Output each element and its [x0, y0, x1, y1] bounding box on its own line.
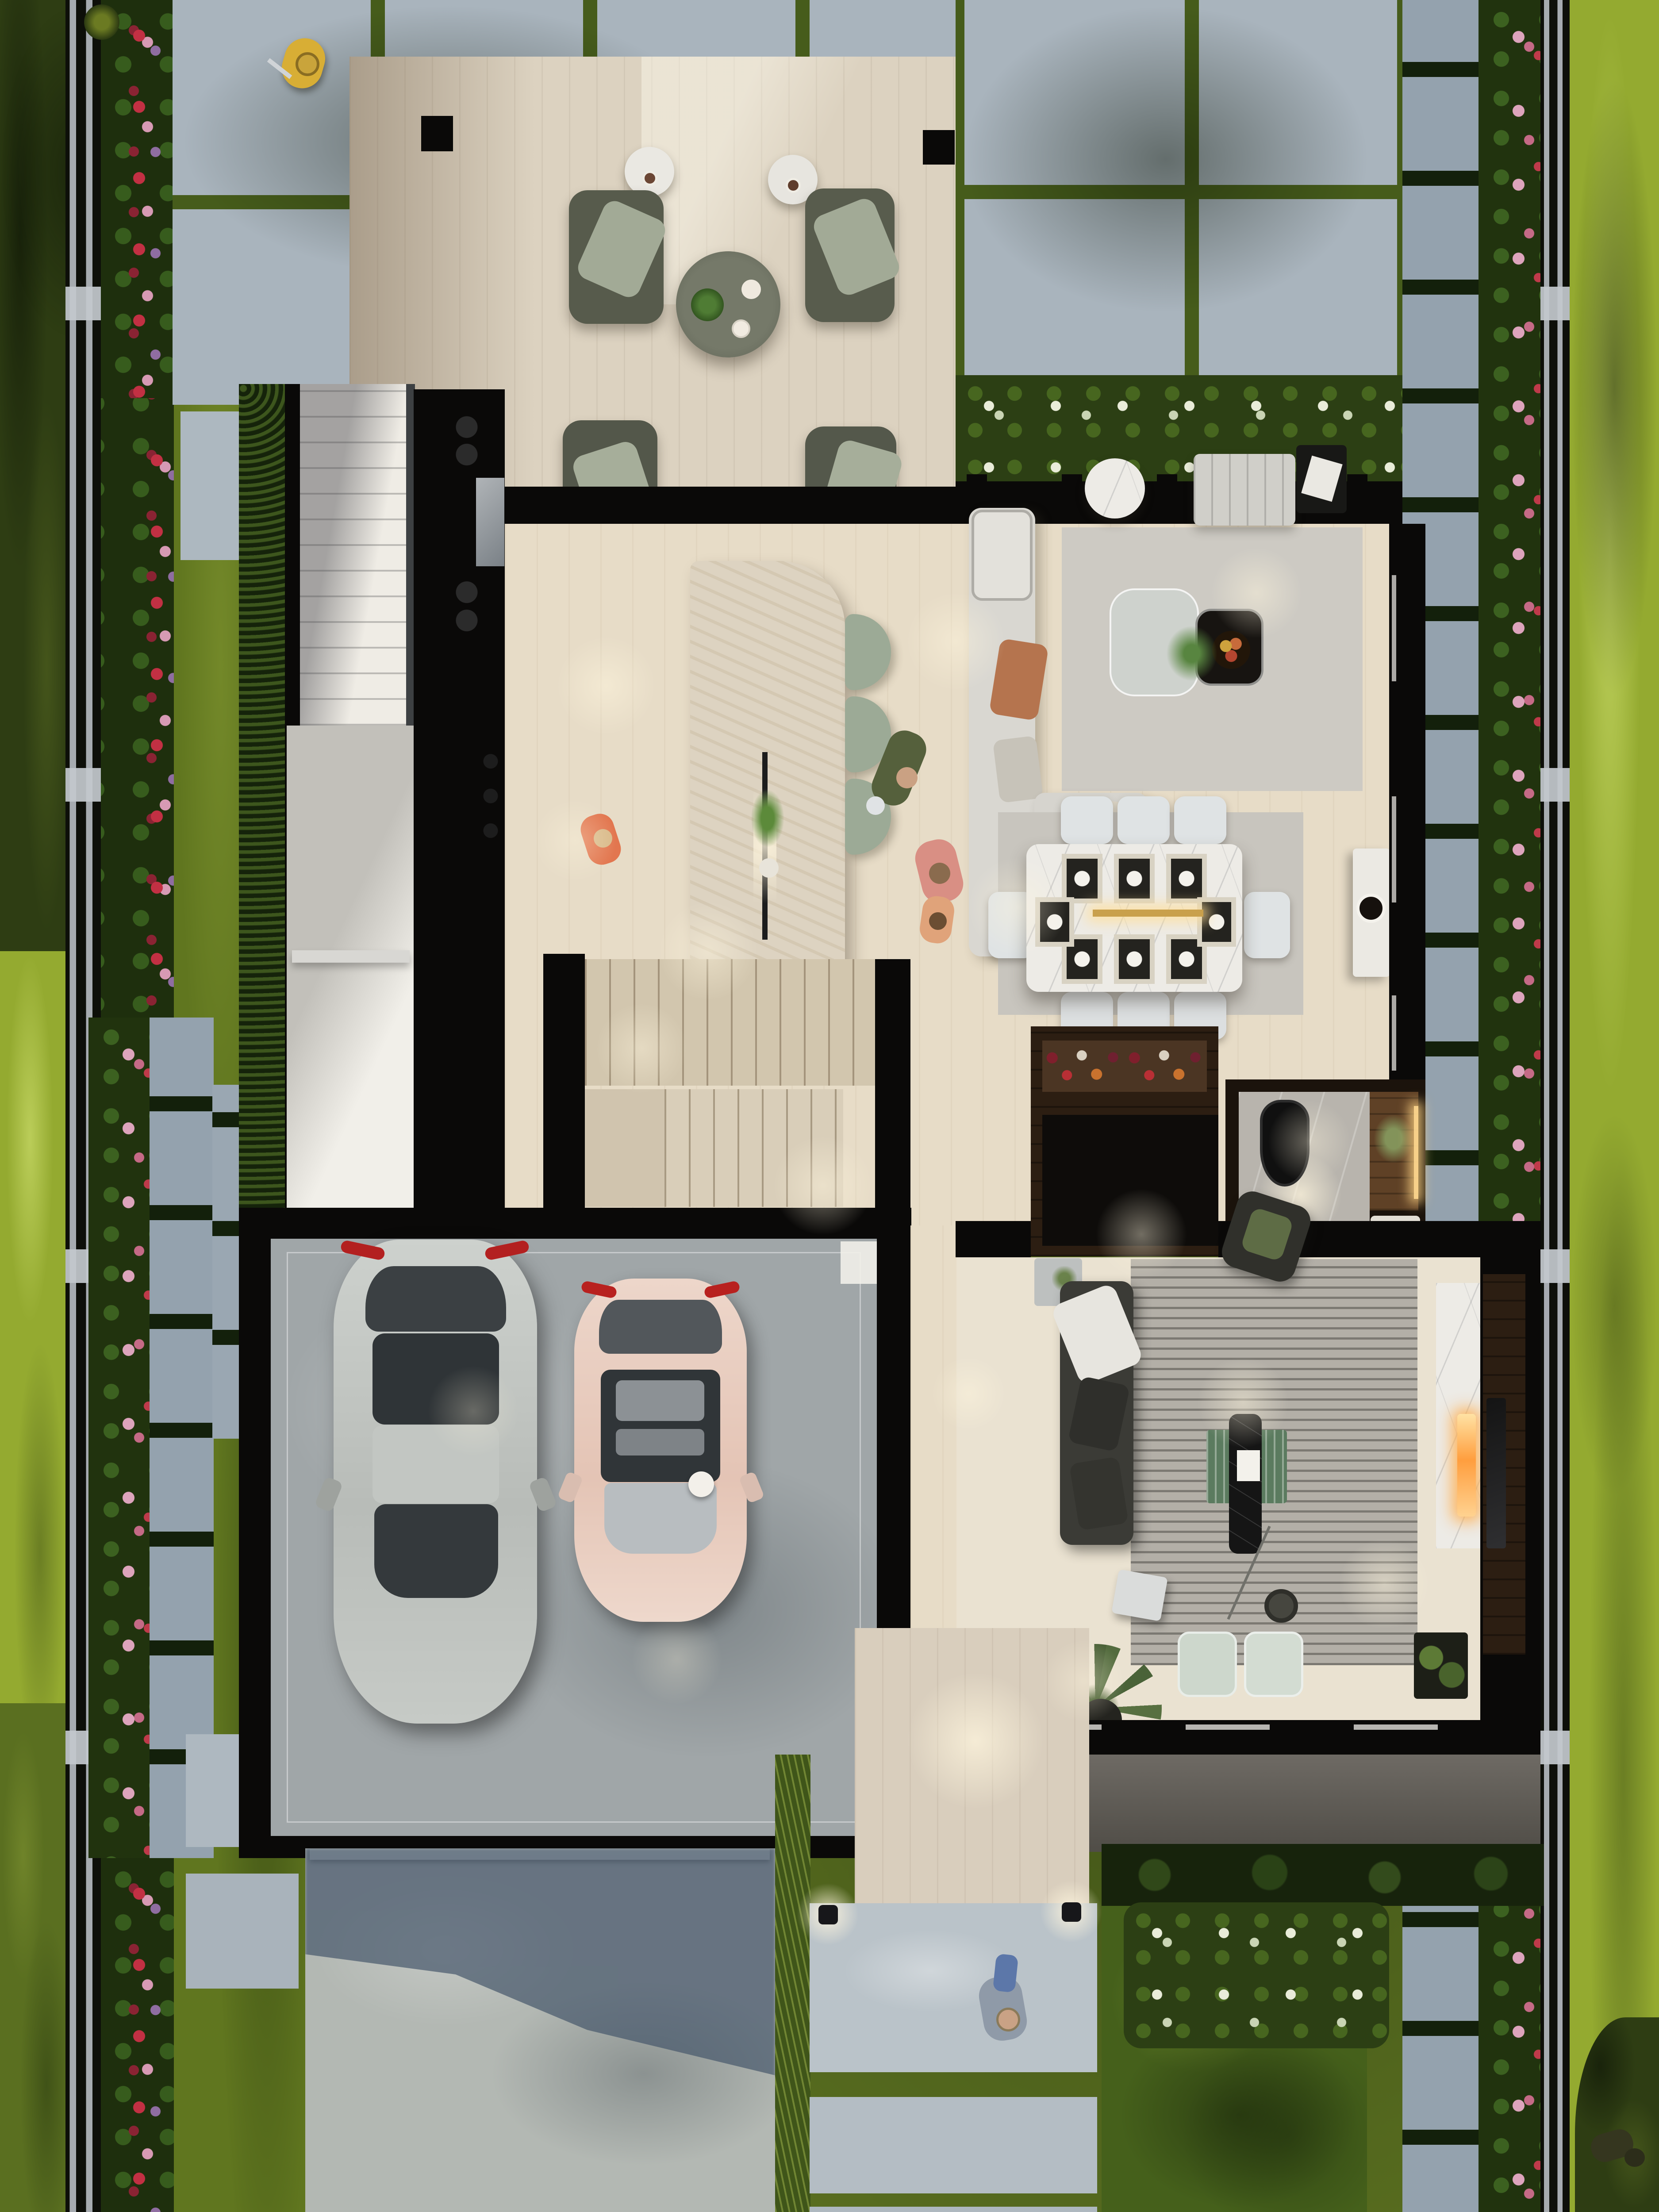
place-setting-n3 [1166, 854, 1207, 903]
ceiling-glow-5 [964, 854, 1071, 960]
laundry-shadow [287, 726, 415, 1208]
white-flower-bushes [1124, 1902, 1389, 2048]
left-path-column [150, 1018, 214, 1858]
vanity-light-strip [1414, 1106, 1418, 1199]
grass-tuft-strip [775, 1755, 810, 2212]
ceiling-glow-12 [1336, 1535, 1433, 1632]
ceiling-glow-13 [1040, 1637, 1128, 1725]
window-frame-1 [1392, 575, 1396, 681]
sofa-white-headrest [972, 510, 1033, 601]
patio-cup-2 [786, 178, 801, 193]
tv-panel [1486, 1398, 1506, 1548]
grill-unit-1 [437, 406, 496, 472]
ceiling-glow-8 [1208, 544, 1305, 641]
deck-post-ne [923, 130, 955, 165]
window-slit-s3 [1354, 1724, 1438, 1730]
ceiling-glow-3 [770, 1133, 876, 1239]
kitchen-tall-unit [476, 478, 504, 566]
tree-shadow-right-grass-2 [1570, 1106, 1659, 1504]
page: { "meta": { "scene_type": "top-down 3d a… [0, 0, 1659, 2212]
outer-grass-left-bottom [0, 1703, 66, 2212]
ceiling-glow-7 [1265, 1097, 1354, 1186]
laundry-shelf [292, 950, 410, 963]
flowerbed-left-garage [88, 1018, 150, 1858]
car-pink-seats [616, 1380, 704, 1421]
flowerbed-left-bottom [101, 1858, 174, 2212]
outer-grass-left-mid [0, 951, 66, 1703]
pergola-post-2 [1062, 474, 1082, 527]
front-hedge [1102, 1844, 1544, 1906]
fence-right [1540, 0, 1570, 2212]
car-pink-cup [688, 1471, 714, 1497]
pergola-post-5 [1347, 474, 1367, 527]
ceiling-glow-1 [553, 633, 659, 739]
deck-post-nw [421, 116, 453, 151]
sideboard-bowl [1356, 894, 1386, 923]
side-hedge [239, 384, 285, 1208]
window-frame-3 [1392, 995, 1396, 1071]
family-pouf-2 [1244, 1632, 1303, 1697]
family-sofa-pillow-2 [1069, 1456, 1129, 1531]
family-floor-lamp [1264, 1589, 1298, 1623]
ceiling-glow-4 [902, 588, 1009, 695]
tree-shadow-pavers-right [956, 0, 1376, 319]
window-frame-2 [1392, 796, 1396, 902]
stair-landing [585, 1089, 664, 1207]
top-bush [84, 4, 119, 40]
garage-glow-2 [628, 1610, 726, 1708]
porch-glow [902, 1668, 1048, 1814]
place-setting-s2 [1114, 934, 1155, 984]
dining-chair-n3 [1174, 796, 1226, 844]
stair-wall-west [543, 954, 585, 1208]
floorplan-scene [0, 0, 1659, 2212]
walkway-slab-2 [810, 2097, 1097, 2193]
person-walker-legs [993, 1954, 1019, 1993]
exterior-stair-shadow [300, 384, 415, 726]
dog-head [1624, 2148, 1645, 2167]
stair-wall-east [875, 959, 910, 1208]
patio-table-vase-2 [732, 319, 750, 338]
island-plant [751, 790, 784, 847]
garage-house-door [841, 1241, 877, 1284]
dining-chair-n2 [1118, 796, 1170, 844]
walkway-slab-3 [810, 2207, 1097, 2212]
fireplace-flame [1457, 1414, 1476, 1517]
wall-kitchen-north [504, 487, 956, 524]
ceiling-glow-6 [1093, 1186, 1190, 1283]
car-pink-rear-glass [599, 1300, 722, 1354]
patio-table-plant [691, 288, 724, 321]
ceiling-glow-14 [531, 796, 619, 885]
person-gardener-hat [296, 52, 319, 76]
family-coffee-card [1237, 1450, 1260, 1481]
ceiling-glow-10 [929, 1354, 1009, 1433]
vanity-plant [1374, 1115, 1413, 1163]
island-bowl [759, 858, 779, 878]
person-child-1-head [929, 912, 947, 930]
place-setting-e [1197, 897, 1236, 947]
side-table-marble [1085, 458, 1145, 518]
family-cube-table [1111, 1569, 1168, 1621]
porch-light-right [1062, 1902, 1081, 1922]
family-planter [1414, 1632, 1468, 1699]
person-adult-head [896, 767, 918, 788]
ceiling-glow-9 [593, 1000, 690, 1097]
pergola-post-3 [1157, 474, 1177, 527]
wine-rack [1042, 1041, 1207, 1092]
car-silver-rear-glass [365, 1266, 506, 1332]
grill-unit-2 [437, 571, 496, 638]
tree-shadow-right-grass [1570, 66, 1659, 708]
patio-cup-1 [642, 171, 657, 186]
person-adult-bowl [866, 796, 885, 815]
garage-glow-1 [425, 1363, 522, 1460]
family-north-wall-west [956, 1221, 1031, 1257]
window-slit-s2 [1186, 1724, 1270, 1730]
flowerbed-left-mid [101, 398, 174, 1018]
family-pouf-1 [1178, 1632, 1237, 1697]
person-mom-head [929, 863, 950, 884]
car-silver-windshield [374, 1504, 498, 1598]
car-pink-seat-row2 [616, 1429, 704, 1455]
person-walker-head [996, 2008, 1020, 2032]
patio-table-vase-1 [741, 280, 761, 299]
sofa-cushion-grey [993, 736, 1044, 803]
ceiling-glow-11 [1194, 1354, 1292, 1451]
place-setting-n2 [1114, 854, 1155, 903]
flowerbed-left-top [101, 0, 174, 398]
ceiling-glow-2 [655, 898, 761, 1004]
dining-chair-n1 [1061, 796, 1113, 844]
bench-settee [1194, 454, 1295, 526]
porch-light-left [818, 1905, 838, 1924]
left-slab-bottom-2 [186, 1874, 299, 1989]
cooktop [477, 741, 504, 865]
dining-light-bar [1093, 910, 1203, 917]
dining-chair-e [1244, 892, 1290, 958]
